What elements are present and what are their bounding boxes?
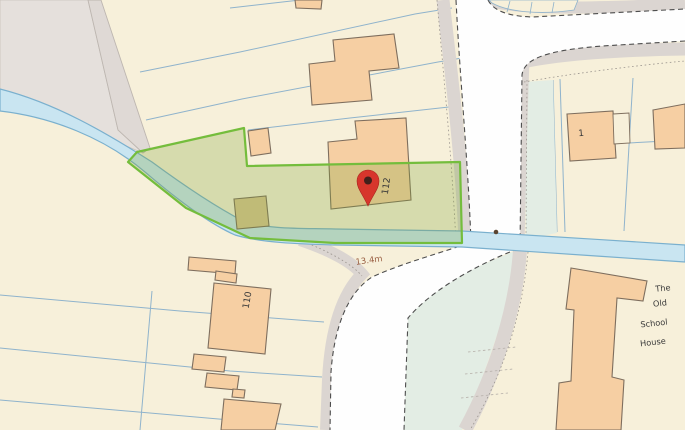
- pin-center-dot: [364, 177, 372, 185]
- roadside-verge: [524, 80, 557, 239]
- old-school-house-label-line2: Old: [652, 297, 667, 308]
- building: [295, 0, 322, 9]
- building: [205, 373, 239, 390]
- annex: [613, 113, 630, 144]
- map-canvas[interactable]: 112 110 1 13.4m The Old School House: [0, 0, 685, 430]
- building: [653, 104, 685, 149]
- house-1: [567, 111, 616, 161]
- building: [232, 389, 245, 398]
- building: [248, 128, 271, 156]
- building: [221, 399, 281, 430]
- building: [192, 354, 226, 372]
- poi-dot: [494, 230, 499, 235]
- house-number-1-label: 1: [578, 129, 585, 139]
- map-viewport[interactable]: 112 110 1 13.4m The Old School House: [0, 0, 685, 430]
- old-school-house-label-line1: The: [654, 282, 671, 294]
- house-110: [208, 283, 271, 354]
